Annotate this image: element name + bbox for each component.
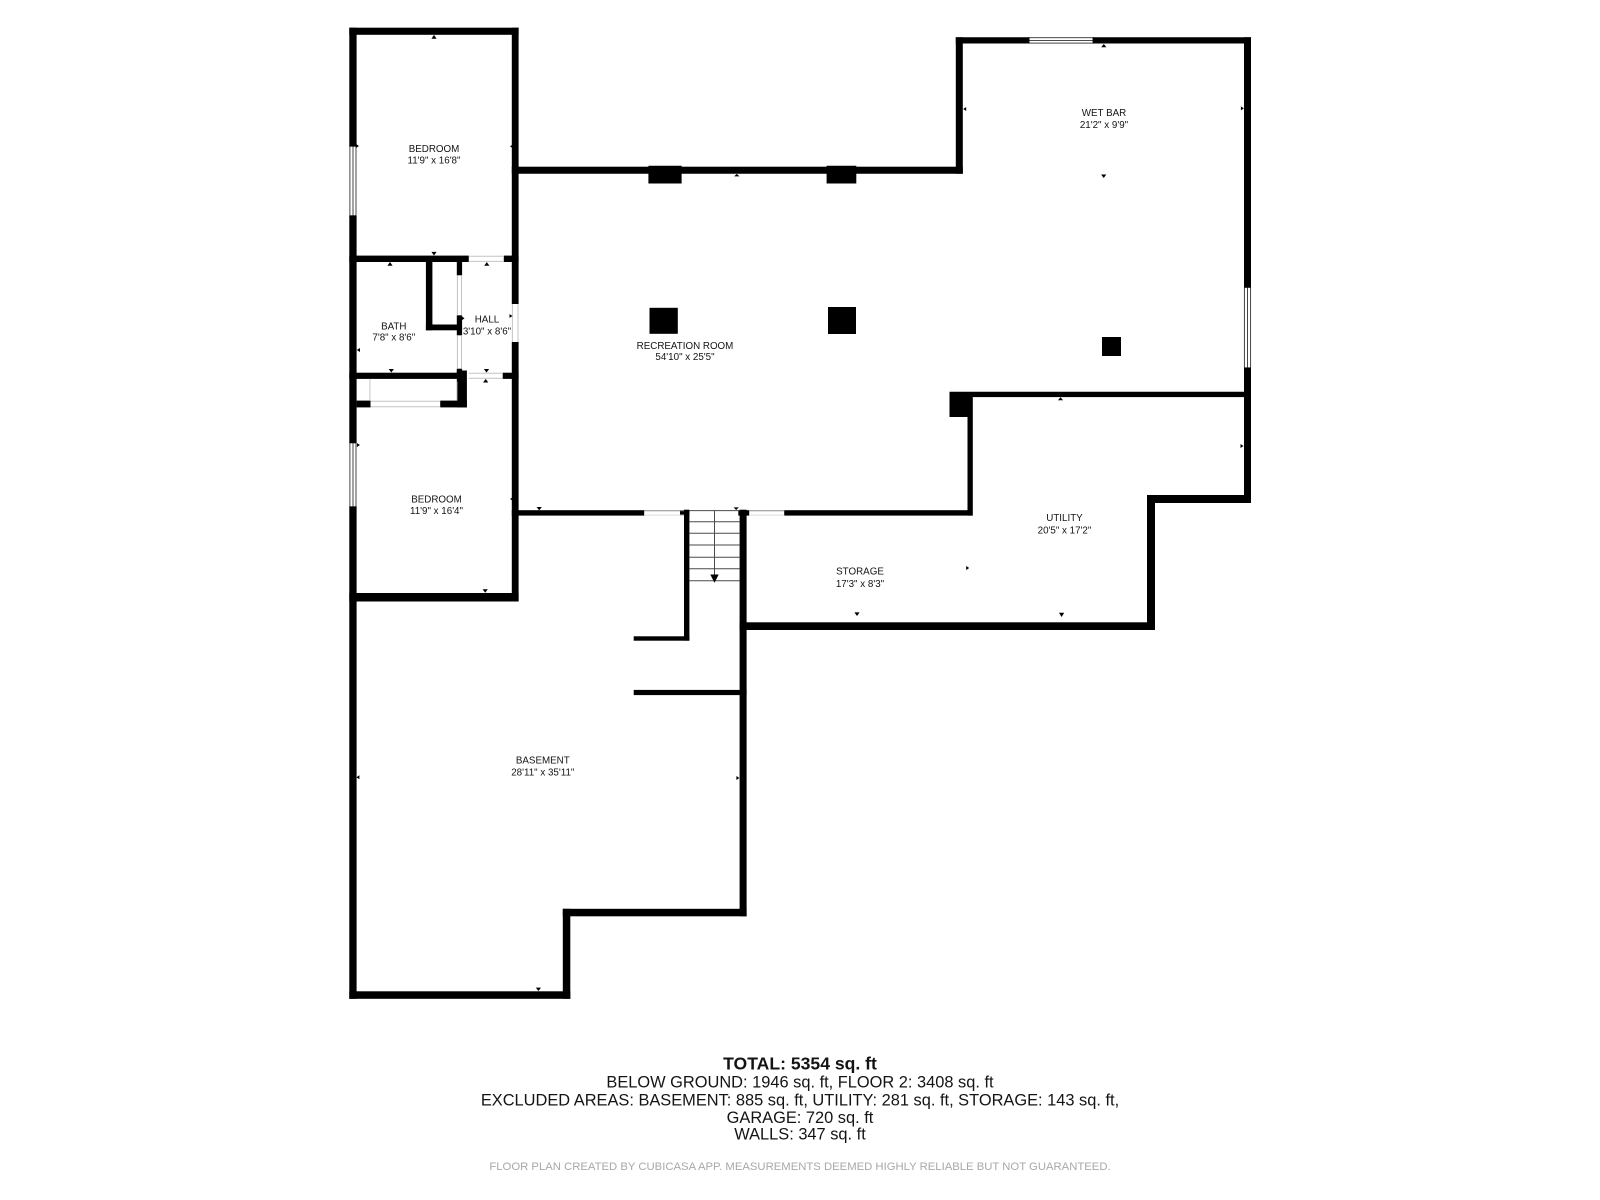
svg-text:BELOW GROUND: 1946 sq. ft, FLO: BELOW GROUND: 1946 sq. ft, FLOOR 2: 3408… — [606, 1074, 994, 1092]
svg-text:TOTAL: 5354 sq. ft: TOTAL: 5354 sq. ft — [723, 1053, 877, 1073]
svg-text:3'10" x 8'6": 3'10" x 8'6" — [463, 327, 512, 338]
svg-text:UTILITY: UTILITY — [1046, 513, 1083, 524]
svg-text:GARAGE: 720 sq. ft: GARAGE: 720 sq. ft — [727, 1109, 874, 1127]
svg-text:11'9" x 16'8": 11'9" x 16'8" — [407, 155, 461, 166]
svg-text:BEDROOM: BEDROOM — [409, 144, 460, 155]
svg-text:17'3" x 8'3": 17'3" x 8'3" — [836, 579, 885, 590]
svg-text:54'10" x 25'5": 54'10" x 25'5" — [655, 352, 715, 363]
svg-text:STORAGE: STORAGE — [836, 567, 884, 578]
svg-text:20'5" x 17'2": 20'5" x 17'2" — [1038, 525, 1092, 536]
svg-text:EXCLUDED AREAS: BASEMENT: 885: EXCLUDED AREAS: BASEMENT: 885 sq. ft, UT… — [481, 1092, 1119, 1110]
svg-text:28'11" x 35'11": 28'11" x 35'11" — [511, 768, 575, 779]
svg-text:11'9" x 16'4": 11'9" x 16'4" — [410, 506, 464, 517]
svg-text:BATH: BATH — [381, 321, 406, 332]
svg-text:21'2" x 9'9": 21'2" x 9'9" — [1080, 120, 1129, 131]
svg-text:FLOOR PLAN CREATED BY CUBICASA: FLOOR PLAN CREATED BY CUBICASA APP. MEAS… — [489, 1161, 1110, 1173]
svg-text:BEDROOM: BEDROOM — [411, 494, 462, 505]
svg-text:WET BAR: WET BAR — [1082, 108, 1126, 119]
svg-text:WALLS: 347 sq. ft: WALLS: 347 sq. ft — [734, 1126, 866, 1144]
svg-text:HALL: HALL — [475, 315, 500, 326]
svg-text:7'8" x 8'6": 7'8" x 8'6" — [372, 333, 415, 344]
svg-text:RECREATION ROOM: RECREATION ROOM — [637, 341, 734, 352]
svg-text:BASEMENT: BASEMENT — [516, 755, 570, 766]
